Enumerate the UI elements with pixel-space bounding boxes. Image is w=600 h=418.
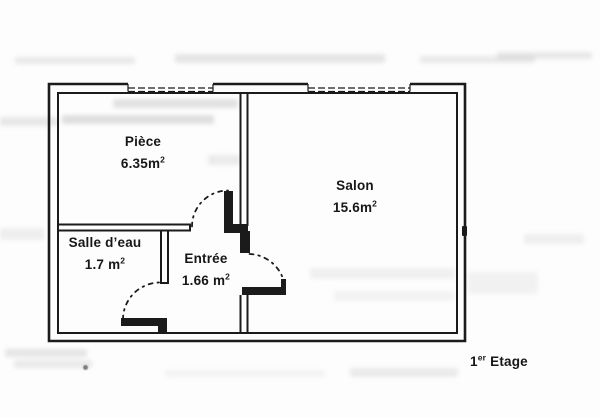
room-area: 15.6m2 bbox=[333, 197, 377, 219]
room-label-salon: Salon 15.6m2 bbox=[333, 175, 377, 219]
room-label-entree: Entrée 1.66 m2 bbox=[182, 248, 230, 292]
floorplan-scan-page: Pièce 6.35m2 Salon 15.6m2 Salle d’eau 1.… bbox=[0, 0, 600, 418]
door-salon-leaf bbox=[242, 279, 286, 295]
door-piece-leaf bbox=[224, 191, 233, 231]
room-area: 6.35m2 bbox=[121, 153, 165, 175]
room-name: Salon bbox=[336, 178, 374, 193]
door-piece-swing-arc bbox=[192, 191, 228, 227]
wall-salledeau-east bbox=[160, 232, 169, 284]
exterior-wall-inner-line bbox=[58, 93, 457, 333]
room-label-piece: Pièce 6.35m2 bbox=[121, 131, 165, 175]
exterior-wall-outer-line bbox=[49, 84, 465, 341]
door-salon-swing-arc bbox=[250, 254, 285, 282]
wall-entree-salon-mid-block bbox=[240, 231, 250, 253]
wall-piece-salon bbox=[241, 94, 248, 226]
room-name: Pièce bbox=[125, 134, 161, 149]
door-salledeau-leaf bbox=[121, 318, 160, 326]
door-salledeau-hinge-post bbox=[158, 318, 167, 334]
room-name: Entrée bbox=[184, 251, 227, 266]
floor-label: 1er Etage bbox=[470, 354, 528, 369]
room-label-salledeau: Salle d’eau 1.7 m2 bbox=[69, 232, 142, 276]
wall-entree-salon-lower bbox=[241, 295, 248, 332]
room-area: 1.7 m2 bbox=[69, 254, 142, 276]
room-area: 1.66 m2 bbox=[182, 270, 230, 292]
room-name: Salle d’eau bbox=[69, 235, 142, 250]
door-salledeau-swing-arc bbox=[123, 283, 160, 320]
window-lines bbox=[128, 88, 410, 92]
scan-blob-right-wall bbox=[462, 226, 467, 236]
wall-piece-south bbox=[58, 224, 190, 232]
